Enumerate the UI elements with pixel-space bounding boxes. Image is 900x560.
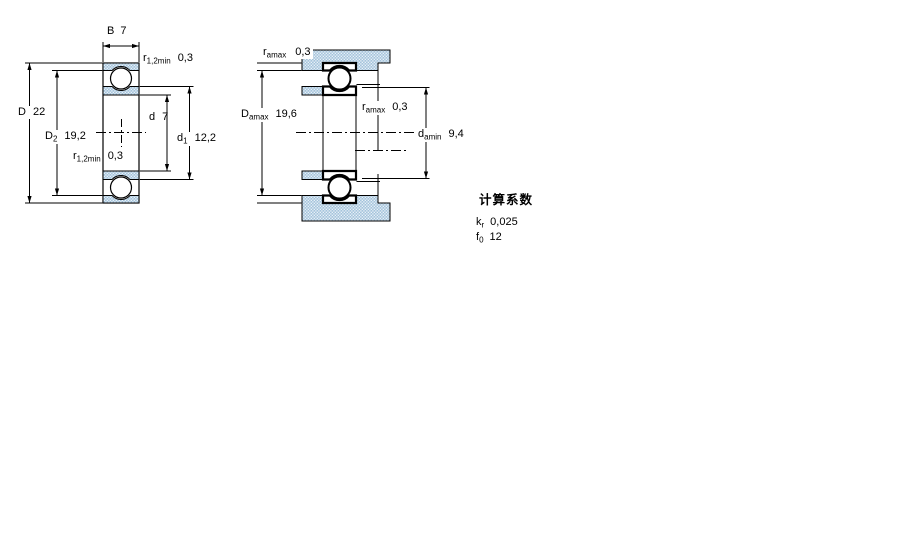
shaft-shoulder-top: [302, 87, 323, 96]
calc-factor-f0: f0 12: [476, 231, 502, 245]
dim-label-B: B 7: [107, 25, 126, 38]
dim-label-r12min-bottom: r1,2min 0,3: [73, 150, 123, 164]
mounting-dimensions-view: [257, 50, 437, 221]
calc-factor-kr: kr 0,025: [476, 216, 518, 230]
mounted-ball-top: [329, 68, 351, 90]
dim-label-r12min-top: r1,2min 0,3: [143, 52, 193, 66]
ball-top: [111, 68, 132, 89]
dim-label-ramax-top: ramax 0,3: [263, 46, 313, 60]
dim-label-damin: damin 9,4: [416, 128, 466, 142]
dim-label-d: d 7: [149, 111, 168, 124]
dim-label-ramax-mid: ramax 0,3: [360, 101, 410, 115]
ball-bottom: [111, 177, 132, 198]
mounted-ball-bottom: [329, 177, 351, 199]
shaft-shoulder-bottom: [302, 171, 323, 180]
calc-factors-title: 计算系数: [479, 194, 533, 207]
dim-label-D: D 22: [16, 106, 47, 119]
dim-label-D2: D2 19,2: [43, 130, 88, 144]
technical-drawing-canvas: [0, 0, 900, 560]
dim-label-Damax: Damax 19,6: [239, 108, 299, 122]
dim-label-d1: d1 12,2: [175, 132, 218, 146]
bearing-dimension-drawing: B 7 r1,2min 0,3 D 22 D2 19,2 r1,2min 0,3…: [0, 0, 900, 560]
